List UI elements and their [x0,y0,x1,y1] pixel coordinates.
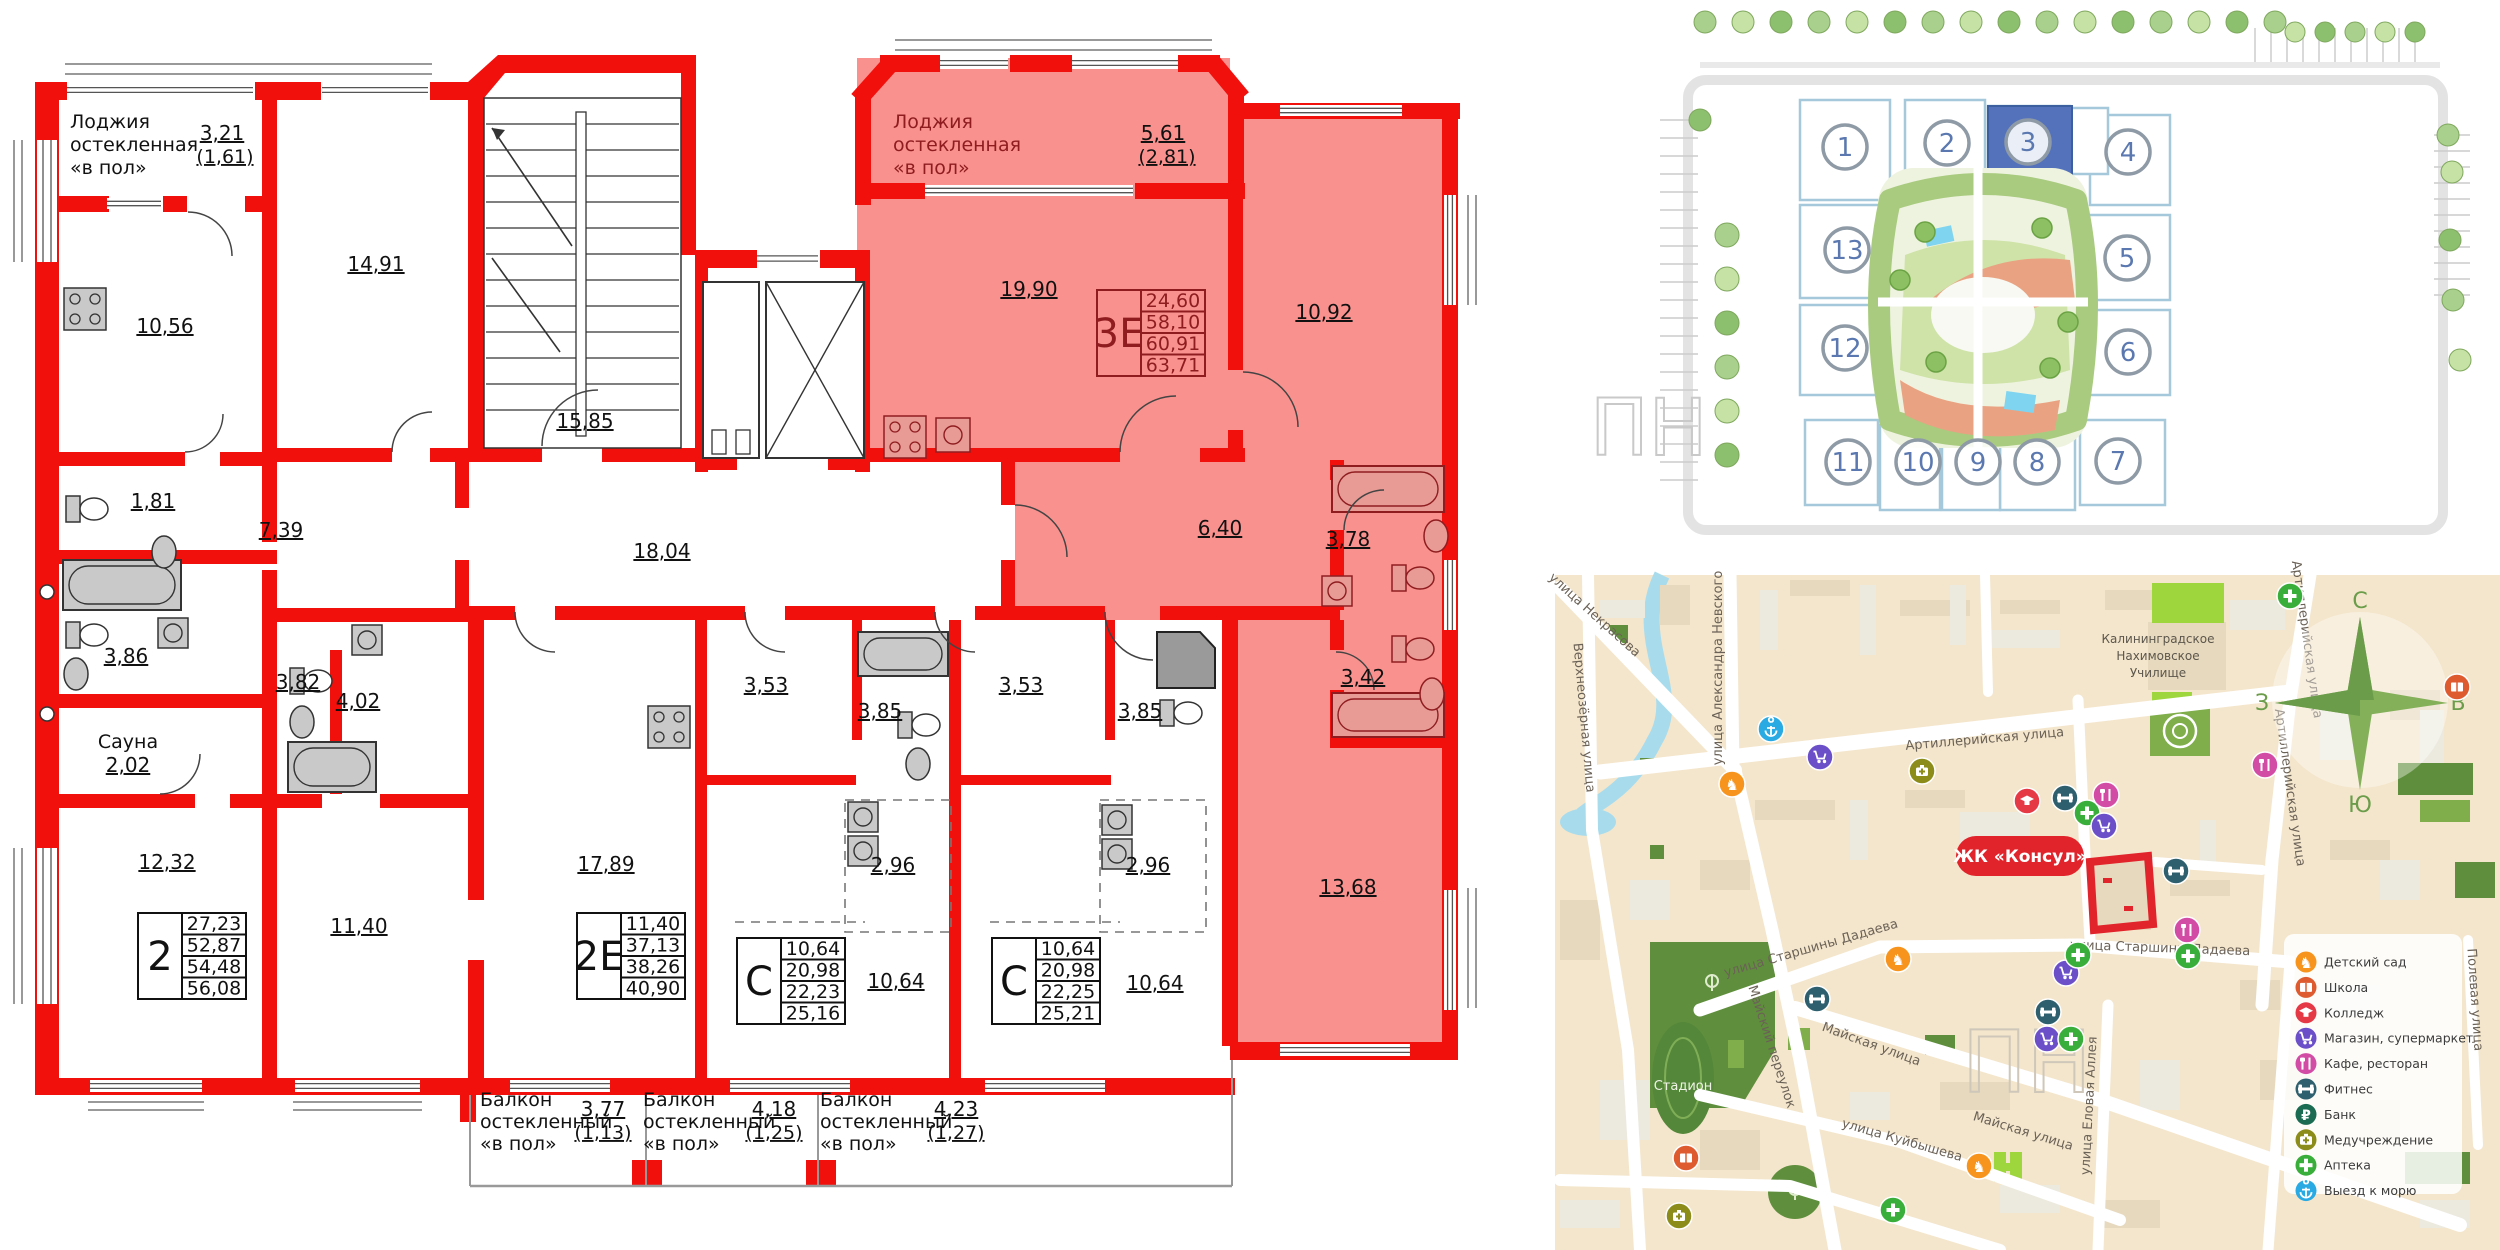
poi-fitness [2035,999,2061,1025]
legend-item: Школа [2296,977,2369,998]
building-number: 13 [1830,236,1863,266]
compass-n: С [2352,589,2367,614]
svg-text:♞: ♞ [1725,776,1738,794]
legend-label: Банк [2324,1107,2356,1122]
college-label: Училище [2130,666,2186,680]
area-value: 22,25 [1041,981,1095,1003]
plan-label: 17,89 [577,852,634,876]
plan-label: «в пол» [70,157,147,179]
city-map: Стадион ПН улица НекрасоваВерхнеозёрная … [1545,560,2500,1250]
area-value: 37,13 [626,935,680,957]
plan-label: 2,96 [1126,853,1171,877]
plan-label: 7,39 [259,518,304,542]
plan-label: (1,61) [196,146,253,168]
apartment-type: 2Е [574,934,625,980]
poi-fitness [2052,785,2078,811]
apartment-type: С [745,959,773,1005]
complex-name: ЖК «Консул» [1953,847,2087,867]
apartment-type: С [1000,959,1028,1005]
college-label: Калининградское [2102,632,2215,646]
plan-label: 14,91 [347,252,404,276]
legend-label: Детский сад [2324,955,2407,970]
plan-label: 3,21 [200,121,245,145]
poi-horse: ♞ [1719,771,1745,797]
poi-fitness [2163,858,2189,884]
poi-book [2444,674,2470,700]
area-value: 10,64 [786,938,840,960]
plan-label: 19,90 [1000,277,1057,301]
area-value: 52,87 [187,935,241,957]
area-value: 40,90 [626,978,680,1000]
area-value: 38,26 [626,956,680,978]
site-building-8[interactable]: 8 [2015,440,2059,484]
plan-label: 3,42 [1341,665,1386,689]
plan-label: Балкон [480,1089,552,1111]
plan-label: 15,85 [556,409,613,433]
area-value: 20,98 [786,960,840,982]
site-building-1[interactable]: 1 [1823,125,1867,169]
apartment-3e-area [857,58,1458,1060]
building-number: 5 [2119,244,2136,274]
plan-label: 3,78 [1326,527,1371,551]
area-value: 56,08 [187,978,241,1000]
site-building-9[interactable]: 9 [1956,440,2000,484]
apartment-type: 3Е [1094,311,1145,357]
poi-book [1673,1145,1699,1171]
legend-label: Фитнес [2324,1082,2373,1097]
svg-text:♞: ♞ [1891,951,1904,969]
building-number: 12 [1828,334,1861,364]
legend-label: Аптека [2324,1158,2371,1173]
area-value: 54,48 [187,956,241,978]
legend-label: Магазин, супермаркет [2324,1031,2473,1046]
map-legend: ♞Детский садШколаКолледжМагазин, суперма… [2284,934,2473,1201]
area-value: 24,60 [1146,290,1200,312]
plan-label: 4,02 [336,689,381,713]
poi-cart [2034,1026,2060,1052]
plan-label: 3,82 [276,670,321,694]
real-estate-plan-page: Лоджияостекленная«в пол»3,21(1,61)10,561… [0,0,2500,1250]
poi-horse: ♞ [1966,1153,1992,1179]
plan-label: Балкон [820,1089,892,1111]
plan-label: 4,23 [934,1097,979,1121]
poi-plus [2277,583,2303,609]
compass-s: Ю [2348,793,2372,818]
plan-label: остекленная [893,134,1021,156]
pn-logo-watermark: ПН [1590,384,1707,474]
plan-label: 3,85 [858,699,903,723]
street-name: улица Александра Невского [1711,571,1726,766]
plan-label: 3,86 [104,644,149,668]
plan-label: 10,64 [1126,971,1183,995]
legend-label: Кафе, ресторан [2324,1056,2428,1071]
plan-label: 1,81 [131,489,176,513]
plan-label: 3,85 [1118,699,1163,723]
plan-label: 3,53 [999,673,1044,697]
building-number: 1 [1837,133,1854,163]
plan-label: (1,25) [745,1122,802,1144]
plan-label: 4,18 [752,1097,797,1121]
plan-label: «в пол» [893,157,970,179]
site-plan: 12345678910111213 ПН [1590,11,2471,530]
legend-item: Колледж [2296,1002,2385,1023]
site-building-6[interactable]: 6 [2106,330,2150,374]
building-number: 6 [2120,338,2137,368]
poi-food [2174,917,2200,943]
building-number: 8 [2029,448,2046,478]
poi-plus [2175,943,2201,969]
compass-w: З [2255,691,2269,716]
area-value: 22,23 [786,981,840,1003]
site-building-4[interactable]: 4 [2106,130,2150,174]
area-value: 25,16 [786,1003,840,1025]
svg-text:♞: ♞ [1972,1158,1985,1176]
plan-label: 2,02 [106,753,151,777]
building-number: 10 [1901,448,1934,478]
poi-med [1666,1203,1692,1229]
plan-label: 13,68 [1319,875,1376,899]
plan-label: 10,64 [867,969,924,993]
poi-cap [2014,788,2040,814]
legend-label: Школа [2324,980,2368,995]
site-building-5[interactable]: 5 [2105,236,2149,280]
plan-label: Лоджия [893,111,973,133]
area-value: 27,23 [187,913,241,935]
plan-label: «в пол» [643,1133,720,1155]
developer-watermark: ПН [1590,384,1707,474]
poi-cart [1807,744,1833,770]
area-value: 25,21 [1041,1003,1095,1025]
svg-text:♞: ♞ [2299,954,2312,972]
elevators [703,282,864,458]
plan-label: 10,56 [136,314,193,338]
plan-label: Сауна [98,731,158,753]
area-value: 63,71 [1146,355,1200,377]
building-number: 2 [1939,129,1956,159]
plan-label: 5,61 [1141,121,1186,145]
poi-cart [2091,813,2117,839]
plan-label: 3,77 [581,1097,626,1121]
floor-plan: Лоджияостекленная«в пол»3,21(1,61)10,561… [14,40,1476,1186]
plan-label: «в пол» [480,1133,557,1155]
legend-label: Колледж [2324,1005,2384,1020]
legend-label: Медучреждение [2324,1132,2433,1147]
poi-anchor [1758,716,1784,742]
plan-label: (2,81) [1138,146,1195,168]
area-value: 10,64 [1041,938,1095,960]
site-building-10[interactable]: 10 [1896,440,1940,484]
poi-plus [2065,942,2091,968]
plan-label: (1,13) [574,1122,631,1144]
legend-item: Аптека [2296,1155,2371,1176]
area-value: 11,40 [626,913,680,935]
plan-label: (1,27) [927,1122,984,1144]
plan-label: «в пол» [820,1133,897,1155]
staircase [484,98,681,448]
courtyard [1878,168,2088,448]
poi-horse: ♞ [1885,946,1911,972]
site-building-11[interactable]: 11 [1826,440,1870,484]
plan-label: 6,40 [1198,516,1243,540]
poi-plus [1880,1197,1906,1223]
apartment-type: 2 [147,934,172,980]
site-building-12[interactable]: 12 [1823,326,1867,370]
building-number: 7 [2110,447,2127,477]
site-building-13[interactable]: 13 [1825,228,1869,272]
building-number: 4 [2120,138,2137,168]
site-building-3[interactable]: 3 [2006,120,2050,164]
poi-med [1909,758,1935,784]
plan-label: остекленная [70,134,198,156]
scene: Лоджияостекленная«в пол»3,21(1,61)10,561… [0,0,2500,1250]
site-building-2[interactable]: 2 [1925,121,1969,165]
legend-label: Выезд к морю [2324,1183,2416,1198]
plan-label: 18,04 [633,539,690,563]
plan-label: 10,92 [1295,300,1352,324]
legend-item: ♞Детский сад [2296,952,2407,973]
area-value: 58,10 [1146,312,1200,334]
poi-plus [2058,1026,2084,1052]
building-number: 11 [1831,448,1864,478]
area-value: 20,98 [1041,960,1095,982]
svg-text:₽: ₽ [2301,1108,2311,1124]
legend-item: ₽Банк [2296,1104,2357,1125]
area-value: 60,91 [1146,333,1200,355]
plan-label: 2,96 [871,853,916,877]
building-number: 3 [2020,128,2037,158]
college-label: Нахимовское [2116,649,2199,663]
building-number: 9 [1970,448,1987,478]
plan-label: 11,40 [330,914,387,938]
legend-item: Фитнес [2296,1079,2374,1100]
site-building-7[interactable]: 7 [2096,439,2140,483]
plan-label: Балкон [643,1089,715,1111]
highlighted-apartment-fill [857,58,1458,1060]
poi-food [2093,782,2119,808]
plan-label: 3,53 [744,673,789,697]
poi-fitness [1804,986,1830,1012]
poi-food [2252,752,2278,778]
plan-label: Лоджия [70,111,150,133]
plan-label: 12,32 [138,850,195,874]
